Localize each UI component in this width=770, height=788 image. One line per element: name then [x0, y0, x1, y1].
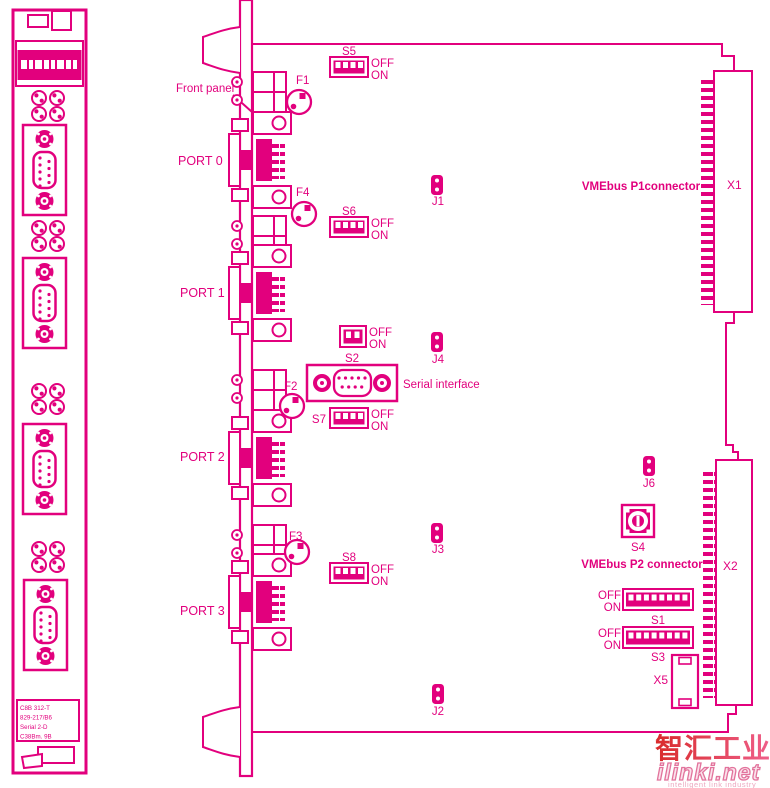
dsub-connector-front-3 — [24, 580, 67, 670]
bottom-handle — [203, 707, 240, 757]
led-indicator — [50, 91, 64, 105]
fuse-f4-label: F4 — [296, 187, 310, 199]
led-indicator — [50, 384, 64, 398]
j2-label: J2 — [432, 706, 444, 718]
j3-label: J3 — [432, 544, 444, 556]
front-panel-label: Front panel — [176, 83, 234, 95]
led-indicator — [32, 107, 46, 121]
bottom-handle-cutout — [22, 754, 42, 768]
dsub-connector-front-0 — [23, 125, 66, 215]
x1-label: X1 — [727, 178, 742, 192]
dip-switch-s2 — [340, 326, 366, 347]
s8-off-label: OFF — [371, 564, 394, 576]
led-indicator — [50, 542, 64, 556]
led-indicator — [32, 558, 46, 572]
s3-label: S3 — [651, 652, 665, 664]
jumper-j1 — [431, 175, 443, 195]
page: C8B 312-T 829-217/B6 Serial 2-D C38Bm. 9… — [0, 0, 770, 788]
x5-label: X5 — [653, 673, 668, 687]
s1-on-label: ON — [604, 602, 621, 614]
id-label-line-1: C8B 312-T — [20, 705, 50, 712]
id-label-line-4: C38Bm. 9B — [20, 734, 52, 741]
port-0-label: PORT 0 — [178, 154, 223, 168]
front-panel-bar — [240, 0, 252, 776]
s7-on-label: ON — [371, 421, 388, 433]
s5-label: S5 — [342, 46, 356, 58]
id-label-line-2: 829-217/B6 — [20, 715, 53, 722]
led-indicator — [32, 91, 46, 105]
dip-switch-s5 — [330, 57, 368, 77]
s7-off-label: OFF — [371, 409, 394, 421]
s5-on-label: ON — [371, 70, 388, 82]
s2-label: S2 — [345, 353, 359, 365]
board-edge-top — [252, 44, 734, 71]
s8-label: S8 — [342, 552, 356, 564]
jumper-j4 — [431, 332, 443, 352]
led-indicator — [50, 107, 64, 121]
s8-on-label: ON — [371, 576, 388, 588]
board-layout-diagram: C8B 312-T 829-217/B6 Serial 2-D C38Bm. 9… — [0, 0, 770, 788]
x2-connector — [703, 460, 752, 705]
s7-label: S7 — [312, 414, 326, 426]
top-handle-cutout — [28, 15, 48, 27]
serial-interface-label: Serial interface — [403, 379, 480, 391]
s6-off-label: OFF — [371, 218, 394, 230]
led-indicator — [32, 384, 46, 398]
brand-label-block — [16, 41, 83, 86]
dip-switch-s6 — [330, 217, 368, 237]
dip-switch-s1 — [623, 589, 693, 610]
j4-label: J4 — [432, 354, 445, 366]
s1-label: S1 — [651, 615, 665, 627]
top-handle — [203, 27, 240, 73]
watermark: 智汇工业 ilinki.net intelligent link industr… — [655, 733, 770, 788]
led-indicator — [32, 221, 46, 235]
rotary-switch-s4 — [622, 505, 654, 537]
port-1-label: PORT 1 — [180, 286, 225, 300]
jumper-j3 — [431, 523, 443, 543]
x2-body — [716, 460, 752, 705]
led-indicator — [50, 221, 64, 235]
vmebus-p1-title: VMEbus P1connector — [582, 181, 701, 193]
s2-on-label: ON — [369, 339, 386, 351]
s3-off-label: OFF — [598, 628, 621, 640]
dip-switch-s3 — [623, 627, 693, 648]
s5-off-label: OFF — [371, 58, 394, 70]
board-edge-right — [726, 312, 738, 460]
s6-on-label: ON — [371, 230, 388, 242]
top-handle-block — [52, 11, 71, 30]
x2-label: X2 — [723, 559, 738, 573]
port-2-connector — [229, 410, 291, 506]
port-3-connector — [229, 554, 291, 650]
port-0-connector — [229, 112, 291, 208]
serial-dsub-connector — [307, 365, 397, 401]
led-indicator — [50, 237, 64, 251]
jumper-j2 — [432, 684, 444, 704]
watermark-tagline-text: intelligent link industry — [668, 780, 756, 788]
x5-connector — [672, 655, 698, 708]
led-indicator — [50, 400, 64, 414]
j6-label: J6 — [643, 478, 655, 490]
j1-label: J1 — [432, 196, 444, 208]
led-indicator — [32, 542, 46, 556]
s4-label: S4 — [631, 542, 646, 554]
led-indicator — [32, 400, 46, 414]
jumper-j6 — [643, 456, 655, 476]
led-indicator — [32, 237, 46, 251]
fuse-f1 — [287, 90, 311, 114]
dsub-connector-front-1 — [23, 258, 66, 348]
dsub-connector-front-2 — [23, 424, 66, 514]
id-label-line-3: Serial 2-D — [20, 724, 48, 731]
vmebus-p2-title: VMEbus P2 connector — [581, 559, 703, 571]
s3-on-label: ON — [604, 640, 621, 652]
fuse-f2 — [280, 394, 304, 418]
s1-off-label: OFF — [598, 590, 621, 602]
front-panel-side-view: C8B 312-T 829-217/B6 Serial 2-D C38Bm. 9… — [13, 10, 86, 773]
s2-off-label: OFF — [369, 327, 392, 339]
x2-pins — [703, 468, 716, 698]
fuse-f2-label: F2 — [284, 381, 297, 393]
x1-pins — [701, 79, 714, 305]
id-label-box: C8B 312-T 829-217/B6 Serial 2-D C38Bm. 9… — [17, 700, 79, 741]
fuse-f1-label: F1 — [296, 75, 309, 87]
port-1-connector — [229, 245, 291, 341]
bottom-handle-block — [38, 747, 74, 763]
fuse-f3-label: F3 — [289, 531, 302, 543]
led-indicator — [50, 558, 64, 572]
board-edge-bottom — [252, 705, 736, 732]
fuse-f4 — [292, 202, 316, 226]
dip-switch-s8 — [330, 563, 368, 583]
s6-label: S6 — [342, 206, 356, 218]
board-top-view: X1 VMEbus P1connector X2 VMEbus P2 conne… — [176, 0, 752, 776]
fuse-f3 — [285, 540, 309, 564]
dip-switch-s7 — [330, 408, 368, 428]
port-3-label: PORT 3 — [180, 604, 225, 618]
port-2-label: PORT 2 — [180, 450, 225, 464]
